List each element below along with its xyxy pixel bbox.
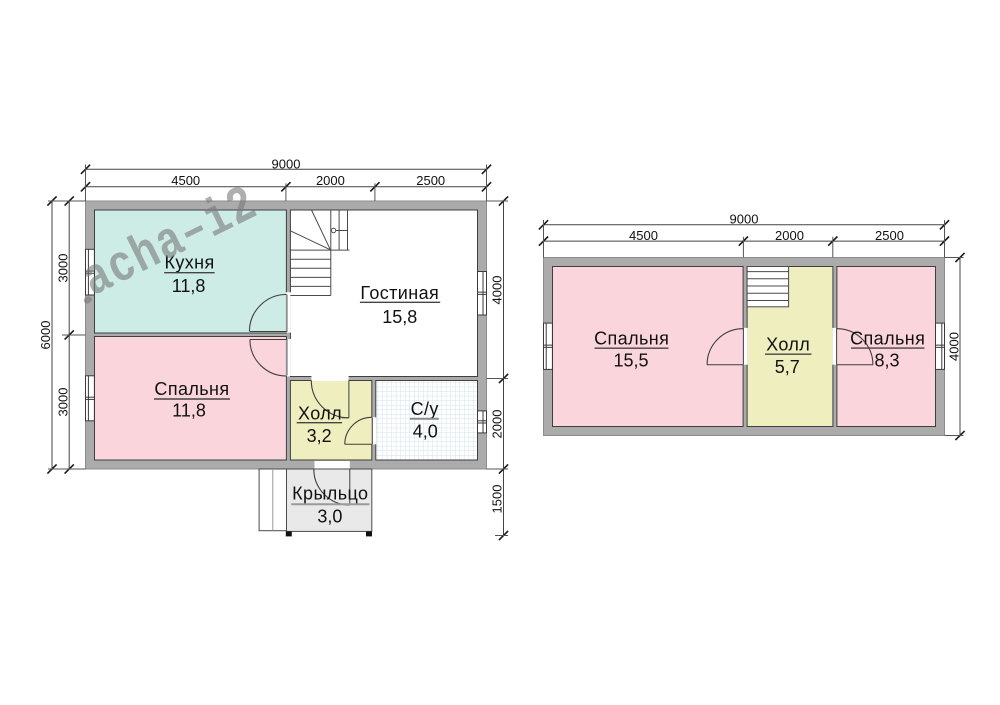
svg-text:4,0: 4,0 xyxy=(413,422,438,442)
svg-text:Холл: Холл xyxy=(298,403,342,423)
svg-text:11,8: 11,8 xyxy=(172,401,206,421)
svg-text:2500: 2500 xyxy=(416,173,445,188)
svg-text:15,8: 15,8 xyxy=(382,307,417,327)
svg-text:4500: 4500 xyxy=(629,228,658,243)
svg-text:Спальня: Спальня xyxy=(850,329,925,349)
svg-text:5,7: 5,7 xyxy=(775,357,800,377)
svg-text:Спальня: Спальня xyxy=(594,329,669,349)
svg-text:15,5: 15,5 xyxy=(613,350,648,370)
svg-text:4000: 4000 xyxy=(947,332,962,361)
svg-text:9000: 9000 xyxy=(730,212,759,227)
svg-text:Холл: Холл xyxy=(766,335,810,355)
svg-text:1500: 1500 xyxy=(490,485,505,514)
svg-text:3,2: 3,2 xyxy=(307,426,332,446)
svg-text:Спальня: Спальня xyxy=(154,379,229,399)
svg-text:2000: 2000 xyxy=(490,410,505,439)
svg-text:Гостиная: Гостиная xyxy=(360,283,439,303)
svg-text:9000: 9000 xyxy=(272,156,301,171)
svg-text:6000: 6000 xyxy=(38,321,53,350)
svg-text:3,0: 3,0 xyxy=(317,507,342,527)
svg-text:С/у: С/у xyxy=(411,399,439,419)
svg-text:4500: 4500 xyxy=(171,173,200,188)
svg-text:8,3: 8,3 xyxy=(874,351,899,371)
svg-text:4000: 4000 xyxy=(490,276,505,305)
svg-text:11,8: 11,8 xyxy=(172,276,206,296)
svg-text:3000: 3000 xyxy=(56,388,71,417)
svg-text:2500: 2500 xyxy=(875,228,904,243)
svg-text:2000: 2000 xyxy=(316,173,345,188)
svg-text:Крыльцо: Крыльцо xyxy=(292,484,368,504)
svg-text:2000: 2000 xyxy=(775,228,804,243)
svg-text:3000: 3000 xyxy=(56,254,71,283)
